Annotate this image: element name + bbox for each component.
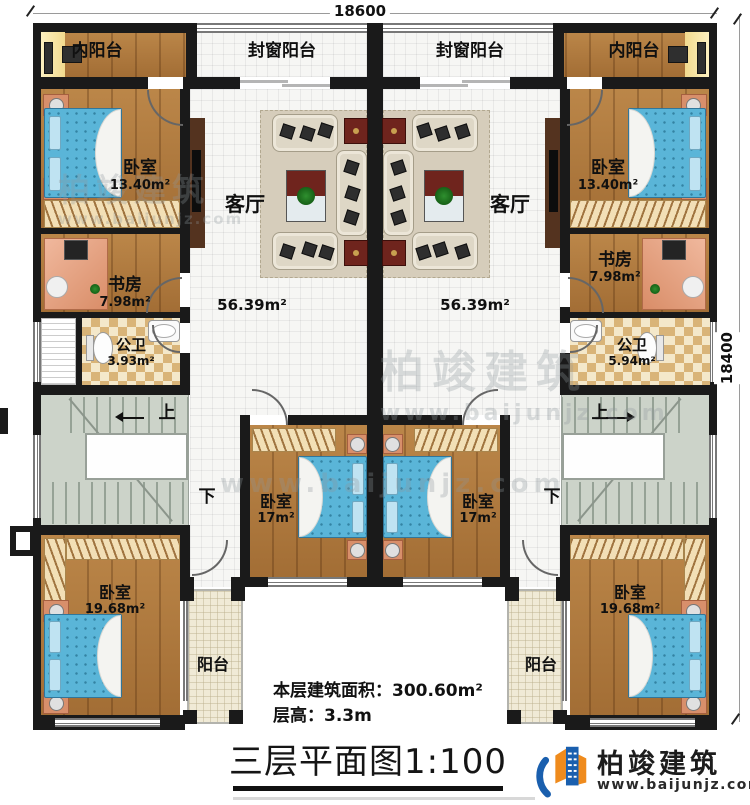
plant: [435, 187, 453, 205]
chimney-flue: [10, 526, 36, 556]
nightstand: [347, 434, 367, 454]
title-underline-thin: [233, 797, 535, 800]
room-label-study-left: 书房 7.98m²: [99, 275, 150, 311]
side-table: [344, 118, 368, 144]
window-stairwell: [709, 435, 717, 518]
wall-midroom-bottom-a: [482, 577, 505, 587]
window-sealed-balcony: [197, 23, 367, 33]
sliding-door-leaf: [462, 80, 510, 83]
brand-logo-icon: [536, 740, 594, 802]
brand-name: 柏竣建筑: [597, 742, 721, 781]
stair-landing: [85, 433, 188, 480]
coat-rack: [697, 42, 706, 74]
brand-website: www.baijunjz.com: [597, 777, 750, 793]
room-label-balcony-left: 阳台: [197, 655, 229, 674]
wardrobe: [44, 538, 66, 602]
wall-midroom-bottom-b: [383, 577, 403, 587]
wall-stair-bottom: [33, 525, 190, 535]
wall-balcony-corner-a: [553, 710, 567, 724]
floor-bath-right-extension: [666, 318, 710, 385]
sliding-door-leaf: [282, 84, 330, 87]
plant: [297, 187, 315, 205]
wall-balcony-corner-b: [507, 710, 521, 724]
window-bath-side: [33, 322, 41, 382]
wall-balcony-band-a: [41, 77, 148, 89]
wall-midroom-top-b: [288, 415, 367, 425]
plant: [650, 284, 660, 294]
room-label-bath-left: 公卫 3.93m²: [107, 336, 154, 368]
wall-center-party: [367, 23, 375, 587]
pillow: [386, 501, 398, 533]
stair-direction-arrow: [118, 417, 144, 419]
dimension-right-value: 18400: [714, 332, 740, 384]
wardrobe: [684, 538, 706, 602]
wardrobe: [570, 538, 684, 560]
pillow: [352, 501, 364, 533]
title-underline-thick: [233, 786, 503, 791]
coffee-table: [424, 170, 464, 222]
pillow: [689, 157, 701, 191]
stair-down-label-right: 下: [544, 487, 561, 507]
room-label-bedroom-bottom-left: 卧室 19.68m²: [85, 583, 145, 618]
window-bottom-bedroom: [590, 718, 695, 727]
desk-chair: [682, 276, 704, 298]
room-label-living-right: 客厅: [490, 192, 530, 216]
room-label-bath-right: 公卫 5.94m²: [608, 336, 655, 368]
wardrobe: [414, 428, 498, 452]
sofa: [336, 150, 367, 236]
wall-midroom-left: [500, 425, 510, 577]
wardrobe: [570, 200, 706, 228]
tv: [549, 150, 558, 212]
wall-center-party: [375, 23, 383, 587]
wall-balcony-post-b: [231, 577, 245, 601]
wall-balcony-post-b: [505, 577, 519, 601]
wall-balcony-band-c: [330, 77, 367, 89]
wall-balcony-post-a: [556, 577, 570, 601]
room-label-bedroom-bottom-right: 卧室 19.68m²: [600, 583, 660, 618]
window-balcony-bedroom: [562, 601, 567, 701]
pillow: [49, 116, 61, 150]
window-bottom-bedroom: [55, 718, 160, 727]
nightstand: [383, 540, 403, 560]
side-table: [344, 240, 368, 266]
wall-midroom-left: [240, 425, 250, 577]
wardrobe: [252, 428, 336, 452]
computer-monitor: [662, 240, 686, 260]
room-label-inner-balcony-left: 内阳台: [72, 41, 123, 61]
wall-balcony-band-c: [383, 77, 420, 89]
wall-balcony-band-a: [602, 77, 709, 89]
wall-bath-bottom: [33, 385, 190, 395]
sliding-door-leaf: [420, 84, 468, 87]
pillow: [689, 659, 701, 691]
wall-balcony-corner-b: [229, 710, 243, 724]
nightstand: [347, 540, 367, 560]
room-label-balcony-right: 阳台: [525, 655, 557, 674]
room-label-bedroom-mid-left: 卧室 17m²: [257, 492, 294, 527]
pillow: [689, 116, 701, 150]
room-label-living-left: 客厅: [225, 192, 265, 216]
wall-innerbalcony-divider: [553, 23, 564, 89]
wall-stair-bottom: [560, 525, 717, 535]
window-stairwell: [33, 435, 41, 518]
room-label-bedroom-top-left: 卧室 13.40m²: [110, 158, 170, 194]
wall-midroom-bottom-b: [347, 577, 367, 587]
room-label-bedroom-top-right: 卧室 13.40m²: [578, 158, 638, 194]
window-sealed-balcony: [383, 23, 553, 33]
room-label-inner-balcony-right: 内阳台: [609, 41, 660, 61]
room-label-bedroom-mid-right: 卧室 17m²: [459, 492, 496, 527]
pillow: [49, 621, 61, 653]
computer-monitor: [64, 240, 88, 260]
floor-area-text: 本层建筑面积：300.60m²: [273, 676, 483, 701]
stair-landing: [562, 433, 665, 480]
desk-chair: [46, 276, 68, 298]
window-midroom: [403, 577, 482, 587]
duvet: [629, 615, 653, 697]
nightstand: [383, 434, 403, 454]
pillow: [689, 621, 701, 653]
sliding-door-leaf: [240, 80, 288, 83]
wall-midroom-top-a: [240, 415, 250, 425]
floor-height-text: 层高：3.3m: [273, 701, 372, 726]
bed: [628, 108, 706, 198]
stair-treads-lower: [562, 482, 698, 524]
stair-up-label-right: 上: [592, 403, 609, 423]
window-balcony-bedroom: [183, 601, 188, 701]
room-label-study-right: 书房 7.98m²: [589, 250, 640, 286]
wall-midroom-bottom-a: [245, 577, 268, 587]
room-label-living-area-right: 56.39m²: [440, 296, 510, 314]
floor-plan: 18600 18400 柏竣建筑 www.baijunjz.com 柏竣建筑 w…: [0, 0, 750, 805]
room-label-living-area-left: 56.39m²: [217, 296, 287, 314]
stair-up-label-left: 上: [159, 403, 176, 423]
wall-bedroom-study: [41, 228, 180, 234]
wall-lightwell-divider: [76, 318, 82, 385]
wall-bedroom-study: [570, 228, 709, 234]
sofa: [412, 232, 478, 270]
sofa: [272, 114, 338, 152]
room-label-sealed-balcony-left: 封窗阳台: [248, 41, 316, 61]
side-table: [382, 240, 406, 266]
duvet: [97, 615, 121, 697]
coffee-table: [286, 170, 326, 222]
page-title: 三层平面图1:100: [229, 734, 507, 783]
room-label-sealed-balcony-right: 封窗阳台: [436, 41, 504, 61]
wall-innerbalcony-divider: [186, 23, 197, 89]
coat-rack: [44, 42, 53, 74]
stair-corridor-divider: [188, 395, 189, 525]
wardrobe: [66, 538, 180, 560]
sofa: [412, 114, 478, 152]
floor-lightwell: [41, 318, 76, 385]
pillow: [49, 659, 61, 691]
stair-down-label-left: 下: [199, 487, 216, 507]
dimension-top-value: 18600: [330, 2, 390, 20]
wall-balcony-post-a: [180, 577, 194, 601]
storage-box: [668, 46, 688, 63]
sofa: [272, 232, 338, 270]
sofa: [383, 150, 414, 236]
side-table: [382, 118, 406, 144]
wall-balcony-corner-a: [183, 710, 197, 724]
edge-mark: [0, 408, 8, 434]
bed: [628, 614, 706, 698]
window-midroom: [268, 577, 347, 587]
bed: [44, 614, 122, 698]
